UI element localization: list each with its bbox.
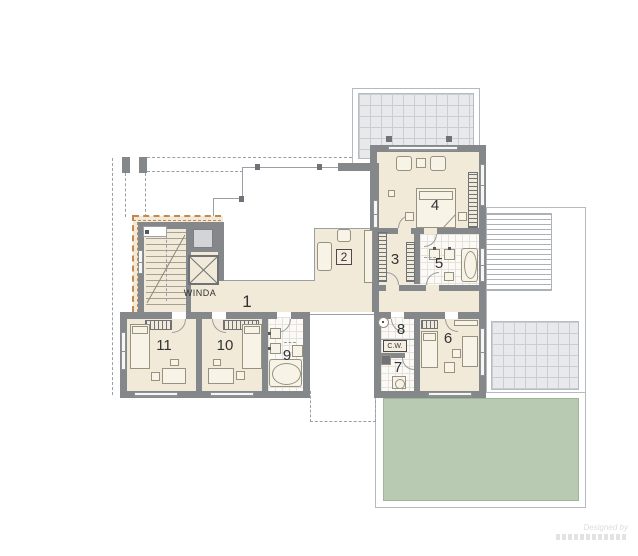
canopy-post (239, 196, 244, 202)
toilet-bowl (395, 379, 405, 389)
canopy-dashed-edge-upper (147, 157, 352, 158)
armchair (396, 156, 412, 171)
room-5-label: 5 (432, 256, 446, 271)
wing-top-wall (404, 312, 445, 319)
shower-dashes (284, 342, 296, 343)
pillar (139, 157, 147, 173)
shelf-room-6 (454, 320, 478, 326)
room-8-6-wall (414, 319, 420, 391)
terrace-post (446, 136, 452, 142)
bathtub-basin (272, 363, 301, 385)
insulation-dashes (133, 220, 221, 221)
room-9-void-wall (303, 312, 310, 398)
chair (444, 362, 455, 373)
faucet (448, 247, 451, 250)
shelf (170, 359, 179, 366)
washbasin-room-7 (381, 355, 391, 365)
sofa (317, 242, 332, 271)
nightstand (405, 212, 414, 221)
pergola-louvers (486, 213, 552, 291)
room-10-9-wall (262, 319, 268, 391)
canopy-dashed-edge-lower (147, 171, 243, 172)
room-11-label: 11 (152, 338, 176, 353)
room-11-side-window (121, 332, 126, 370)
sideboard (364, 230, 373, 283)
toilet-room-5 (444, 272, 454, 281)
room-4-south-wall (437, 228, 479, 234)
desk-room-10 (208, 368, 234, 384)
armchair (337, 229, 351, 242)
insulation-dashes (132, 215, 134, 312)
room-6-window (428, 392, 472, 397)
room-2-label: 2 (336, 249, 352, 265)
desk-room-6 (462, 336, 478, 367)
bed-pillow (244, 326, 260, 334)
room-8-label: 8 (394, 322, 408, 337)
wing-top-wall (226, 312, 277, 319)
room-7-label: 7 (391, 360, 405, 375)
shower-drain (382, 321, 384, 323)
chair (236, 371, 245, 380)
faucet (268, 332, 271, 335)
canopy-post (317, 164, 322, 170)
terrace-post (386, 136, 392, 142)
room-10-window (210, 392, 254, 397)
wardrobe-room-3-left (378, 232, 387, 282)
chair (151, 372, 160, 381)
canopy-dashed-drop-1 (125, 173, 126, 217)
room-10-label: 10 (213, 338, 237, 353)
canopy-post (255, 164, 260, 170)
insulation-dashes (133, 215, 221, 217)
suite-corridor-wall (399, 285, 426, 291)
void-edge (314, 228, 315, 281)
lower-floor-dashed-outline (310, 391, 376, 422)
tv-unit (388, 190, 395, 197)
faucet (268, 347, 271, 350)
side-terrace-grid (491, 321, 579, 390)
room-11-10-wall (196, 319, 202, 391)
room-11-window (134, 392, 178, 397)
wardrobe-room-4 (468, 172, 478, 228)
room-6-label: 6 (441, 331, 455, 346)
wardrobe-room-3-right (406, 242, 415, 282)
wing-top-wall (120, 312, 172, 319)
elevator-label: WINDA (180, 289, 220, 298)
sink (270, 328, 281, 339)
void-floor (310, 316, 374, 391)
bed-fold (443, 214, 456, 228)
wardrobe-room-6 (421, 320, 438, 329)
bed-pillow (423, 333, 436, 341)
watermark: Designed by (556, 523, 628, 540)
hot-water-label: C.W. (383, 340, 407, 352)
room-9-label: 9 (280, 348, 294, 363)
shaft-machine-inner (193, 229, 213, 248)
armchair (430, 156, 446, 171)
stair-window (138, 250, 143, 274)
nightstand (458, 212, 467, 221)
lounge-suite-window (373, 200, 378, 228)
suite-right-window (480, 164, 485, 206)
side-table (416, 158, 426, 168)
faucet (433, 247, 436, 250)
room-4-label: 4 (428, 198, 442, 213)
void-edge (310, 314, 374, 315)
bathtub-basin (464, 251, 477, 279)
watermark-name (556, 534, 628, 540)
pillar (122, 157, 130, 173)
suite-corridor-wall (439, 285, 486, 291)
room-1-label: 1 (238, 293, 256, 310)
void-edge (218, 280, 315, 281)
canopy-edge (242, 167, 243, 199)
elevator-cross (190, 257, 217, 283)
bath-5-window (480, 248, 485, 282)
room-6-side-window (480, 328, 485, 376)
room-3-label: 3 (388, 252, 402, 267)
green-roof (383, 398, 579, 501)
shelf (452, 349, 461, 358)
suite-top-window (388, 146, 458, 151)
shelf (213, 359, 221, 366)
desk-room-11 (162, 368, 186, 384)
site-dashed-line-left (112, 158, 113, 395)
stair-newel (145, 230, 149, 234)
floor-plan: 1 2 3 4 5 6 7 8 9 10 11 WINDA C.W. Desig… (0, 0, 638, 556)
watermark-text: Designed by (556, 523, 628, 532)
suite-corridor-wall (372, 285, 386, 291)
bed-pillow (132, 326, 148, 334)
wing-top-wall (186, 312, 212, 319)
canopy-dashed-drop-2 (145, 173, 146, 217)
